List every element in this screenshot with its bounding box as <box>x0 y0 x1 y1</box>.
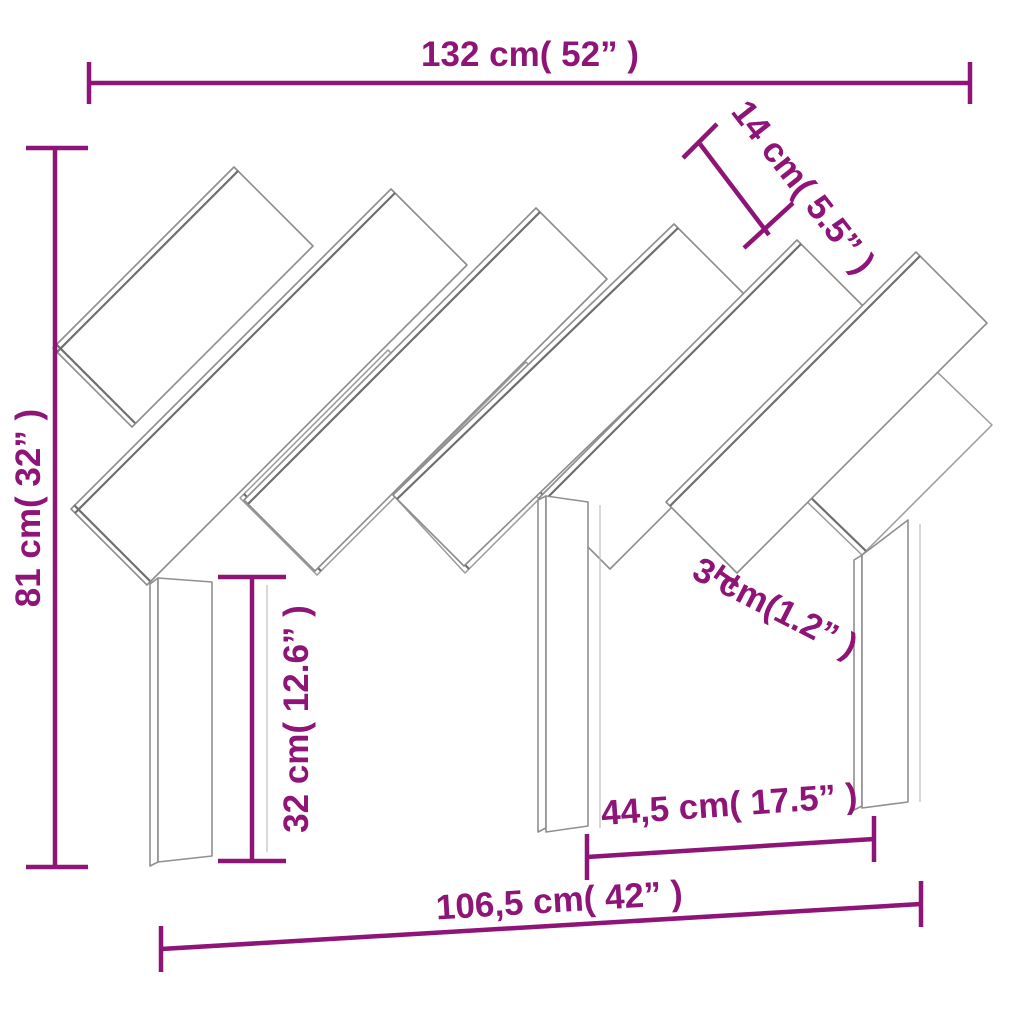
leg-side-face <box>538 496 546 832</box>
dimension-label-total-width: 132 cm( 52” ) <box>421 35 639 74</box>
dimension-line <box>587 839 874 857</box>
dimension-label-inner-leg-span: 44,5 cm( 17.5” ) <box>600 776 859 833</box>
leg-front-face <box>158 578 212 862</box>
dimension-total-width: 132 cm( 52” ) <box>89 35 970 104</box>
dimension-tick <box>683 124 717 158</box>
dimension-diagram-canvas: 132 cm( 52” ) 14 cm( 5.5” ) 81 cm( 32” )… <box>0 0 1024 1024</box>
headboard-dimension-diagram: 132 cm( 52” ) 14 cm( 5.5” ) 81 cm( 32” )… <box>0 0 1024 1024</box>
leg-middle <box>538 496 588 832</box>
dimension-thickness: 3 cm(1.2” ) <box>687 550 864 666</box>
leg-side-face <box>150 578 158 866</box>
dimension-slat-width: 14 cm( 5.5” ) <box>683 93 883 281</box>
dimension-outer-leg-span: 106,5 cm( 42” ) <box>161 874 921 972</box>
leg-front-face <box>546 496 588 832</box>
dimension-label-total-height: 81 cm( 32” ) <box>9 409 48 607</box>
leg-front-face <box>862 520 908 808</box>
dimension-label-thickness: 3 cm(1.2” ) <box>687 550 864 666</box>
leg-left <box>150 578 212 866</box>
dimension-inner-leg-span: 44,5 cm( 17.5” ) <box>587 776 874 880</box>
leg-right <box>854 520 908 810</box>
dimension-label-leg-height: 32 cm( 12.6” ) <box>277 605 316 833</box>
leg-side-face <box>854 555 862 810</box>
